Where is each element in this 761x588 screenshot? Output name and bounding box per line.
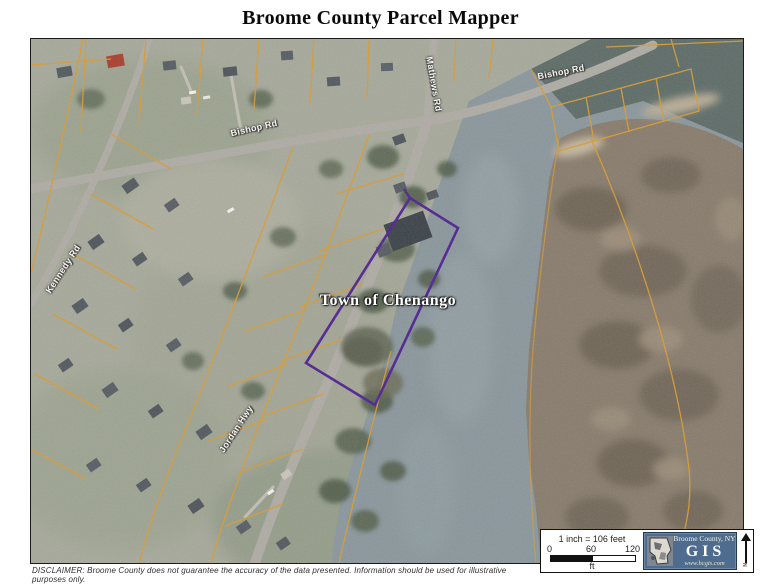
map-info-box: 1 inch = 106 feet 0 60 120 ft Broome Cou…	[540, 529, 754, 573]
map-canvas[interactable]: Bishop Rd Bishop Rd Mathews Rd Kennedy R…	[30, 38, 744, 564]
north-arrow: N	[737, 530, 753, 572]
scale-unit-label: ft	[541, 561, 643, 571]
north-arrow-n-label: N	[741, 563, 747, 567]
disclaimer-text: DISCLAIMER: Broome County does not guara…	[32, 566, 532, 584]
scale-tick-0: 0	[547, 544, 552, 554]
scale-tick-60: 60	[586, 544, 596, 554]
logo-url-text: www.bcgis.com	[673, 561, 736, 568]
scale-bar-panel: 1 inch = 106 feet 0 60 120 ft	[541, 530, 643, 572]
photo-grain	[31, 39, 743, 563]
aerial-map-graphic	[31, 39, 743, 563]
logo-text: Broome County, NY GIS www.bcgis.com	[673, 535, 736, 567]
north-arrow-line	[745, 539, 747, 563]
logo-acronym-text: GIS	[675, 544, 736, 560]
page-title: Broome County Parcel Mapper	[0, 7, 761, 30]
logo-region-text: Broome County, NY	[673, 535, 736, 543]
scale-ticks: 0 60 120	[550, 544, 634, 553]
scale-tick-120: 120	[625, 544, 640, 554]
county-map-graphic	[647, 536, 673, 566]
scale-ratio-text: 1 inch = 106 feet	[541, 534, 643, 544]
bcgis-logo[interactable]: Broome County, NY GIS www.bcgis.com	[643, 532, 737, 570]
